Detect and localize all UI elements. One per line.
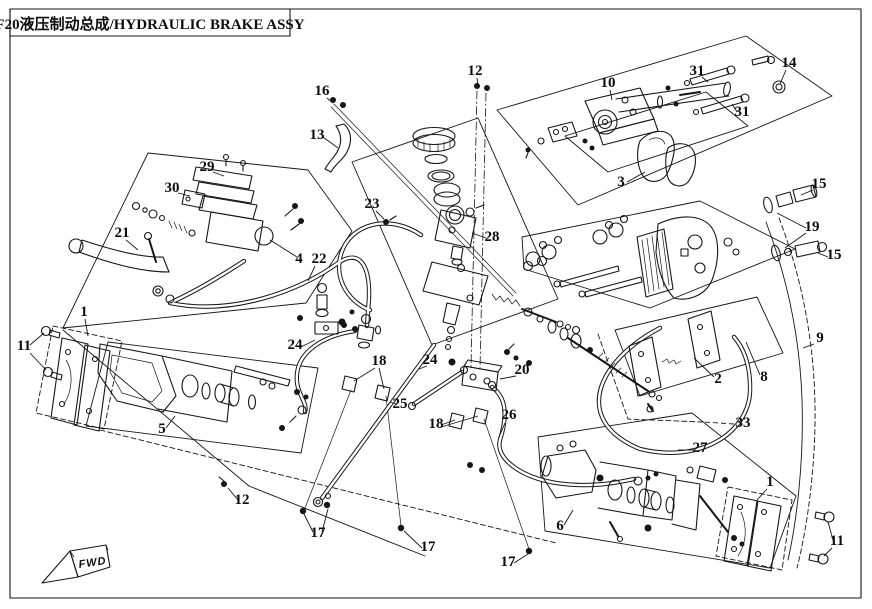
part-number-label: 14 xyxy=(782,55,798,71)
part-callout-24: 24 xyxy=(419,352,438,369)
part-number-label: 1 xyxy=(80,304,88,320)
diagram-title: F20液压制动总成/HYDRAULIC BRAKE ASSY xyxy=(0,15,305,33)
part-callout-17: 17 xyxy=(304,509,328,541)
part-number-label: 11 xyxy=(17,338,31,354)
part-callout-29: 29 xyxy=(200,159,225,176)
group-boundaries xyxy=(36,36,832,570)
part-number-label: 33 xyxy=(736,415,751,431)
part-callout-4: 4 xyxy=(270,240,303,267)
part-callout-17: 17 xyxy=(404,531,436,555)
part-number-label: 20 xyxy=(515,362,530,378)
part-number-label: 12 xyxy=(468,63,483,79)
part-callout-6: 6 xyxy=(556,510,573,534)
part-callout-28: 28 xyxy=(472,229,500,245)
part-callout-11: 11 xyxy=(17,333,46,370)
part-callout-21: 21 xyxy=(115,225,139,250)
part-number-label: 17 xyxy=(421,539,437,555)
part-number-label: 18 xyxy=(429,416,444,432)
part-callout-18: 18 xyxy=(429,416,479,432)
part-number-label: 8 xyxy=(760,369,768,385)
part-number-label: 25 xyxy=(393,396,408,412)
part-number-label: 28 xyxy=(485,229,500,245)
part-callout-12: 12 xyxy=(228,488,250,508)
part-number-label: 29 xyxy=(200,159,215,175)
part-number-label: 16 xyxy=(315,83,331,99)
part-number-label: 5 xyxy=(158,421,166,437)
part-callout-31: 31 xyxy=(690,63,709,82)
part-callout-1: 1 xyxy=(80,304,88,336)
part-callout-15: 15 xyxy=(801,176,827,195)
part-callout-23: 23 xyxy=(365,196,385,219)
part-number-label: 23 xyxy=(365,196,380,212)
part-number-label: 18 xyxy=(372,353,387,369)
part-callout-9: 9 xyxy=(803,330,824,348)
part-number-label: 9 xyxy=(816,330,824,346)
part-number-label: 17 xyxy=(311,525,327,541)
part-number-label: 6 xyxy=(556,518,564,534)
part-number-label: 27 xyxy=(693,440,709,456)
part-number-label: 21 xyxy=(115,225,130,241)
part-number-label: 2 xyxy=(714,371,722,387)
part-callout-30: 30 xyxy=(165,180,191,196)
part-callout-11: 11 xyxy=(824,522,844,556)
part-number-label: 26 xyxy=(502,407,518,423)
part-number-label: 13 xyxy=(310,127,325,143)
part-number-label: 31 xyxy=(690,63,705,79)
part-number-label: 17 xyxy=(501,554,517,570)
part-number-label: 10 xyxy=(601,75,616,91)
part-number-label: 1 xyxy=(766,474,774,490)
part-number-label: 11 xyxy=(830,533,844,549)
parking-brake-assembly-group xyxy=(526,56,786,186)
part-number-label: 31 xyxy=(735,104,750,120)
fwd-label: FWD xyxy=(78,555,107,571)
part-callout-17: 17 xyxy=(501,554,529,570)
fwd-direction-arrow: FWD xyxy=(42,545,110,583)
part-number-label: 3 xyxy=(617,174,625,190)
part-callout-2: 2 xyxy=(694,358,722,387)
part-callout-25: 25 xyxy=(390,396,408,412)
part-number-label: 19 xyxy=(805,219,820,235)
part-number-label: 22 xyxy=(312,251,327,267)
part-callout-12: 12 xyxy=(468,63,483,85)
part-callout-3: 3 xyxy=(617,172,645,190)
part-number-label: 4 xyxy=(295,251,303,267)
part-number-callouts: 1613121031143132930214222328151915928111… xyxy=(17,55,844,570)
part-number-label: 15 xyxy=(812,176,827,192)
part-number-label: 15 xyxy=(827,247,842,263)
part-callout-31: 31 xyxy=(732,104,750,120)
part-callout-15: 15 xyxy=(818,247,842,263)
part-callout-5: 5 xyxy=(158,416,175,437)
parts-diagram-page: F20液压制动总成/HYDRAULIC BRAKE ASSY xyxy=(0,0,872,609)
part-number-label: 12 xyxy=(235,492,250,508)
part-callout-18: 18 xyxy=(354,353,387,389)
part-number-label: 24 xyxy=(288,337,304,353)
part-callout-20: 20 xyxy=(500,362,530,379)
part-number-label: 24 xyxy=(423,352,439,368)
part-callout-13: 13 xyxy=(310,127,339,148)
part-callout-14: 14 xyxy=(780,55,797,84)
brake-assembly-diagram: F20液压制动总成/HYDRAULIC BRAKE ASSY xyxy=(0,0,872,609)
front-left-caliper-group xyxy=(42,327,309,432)
part-number-label: 30 xyxy=(165,180,180,196)
